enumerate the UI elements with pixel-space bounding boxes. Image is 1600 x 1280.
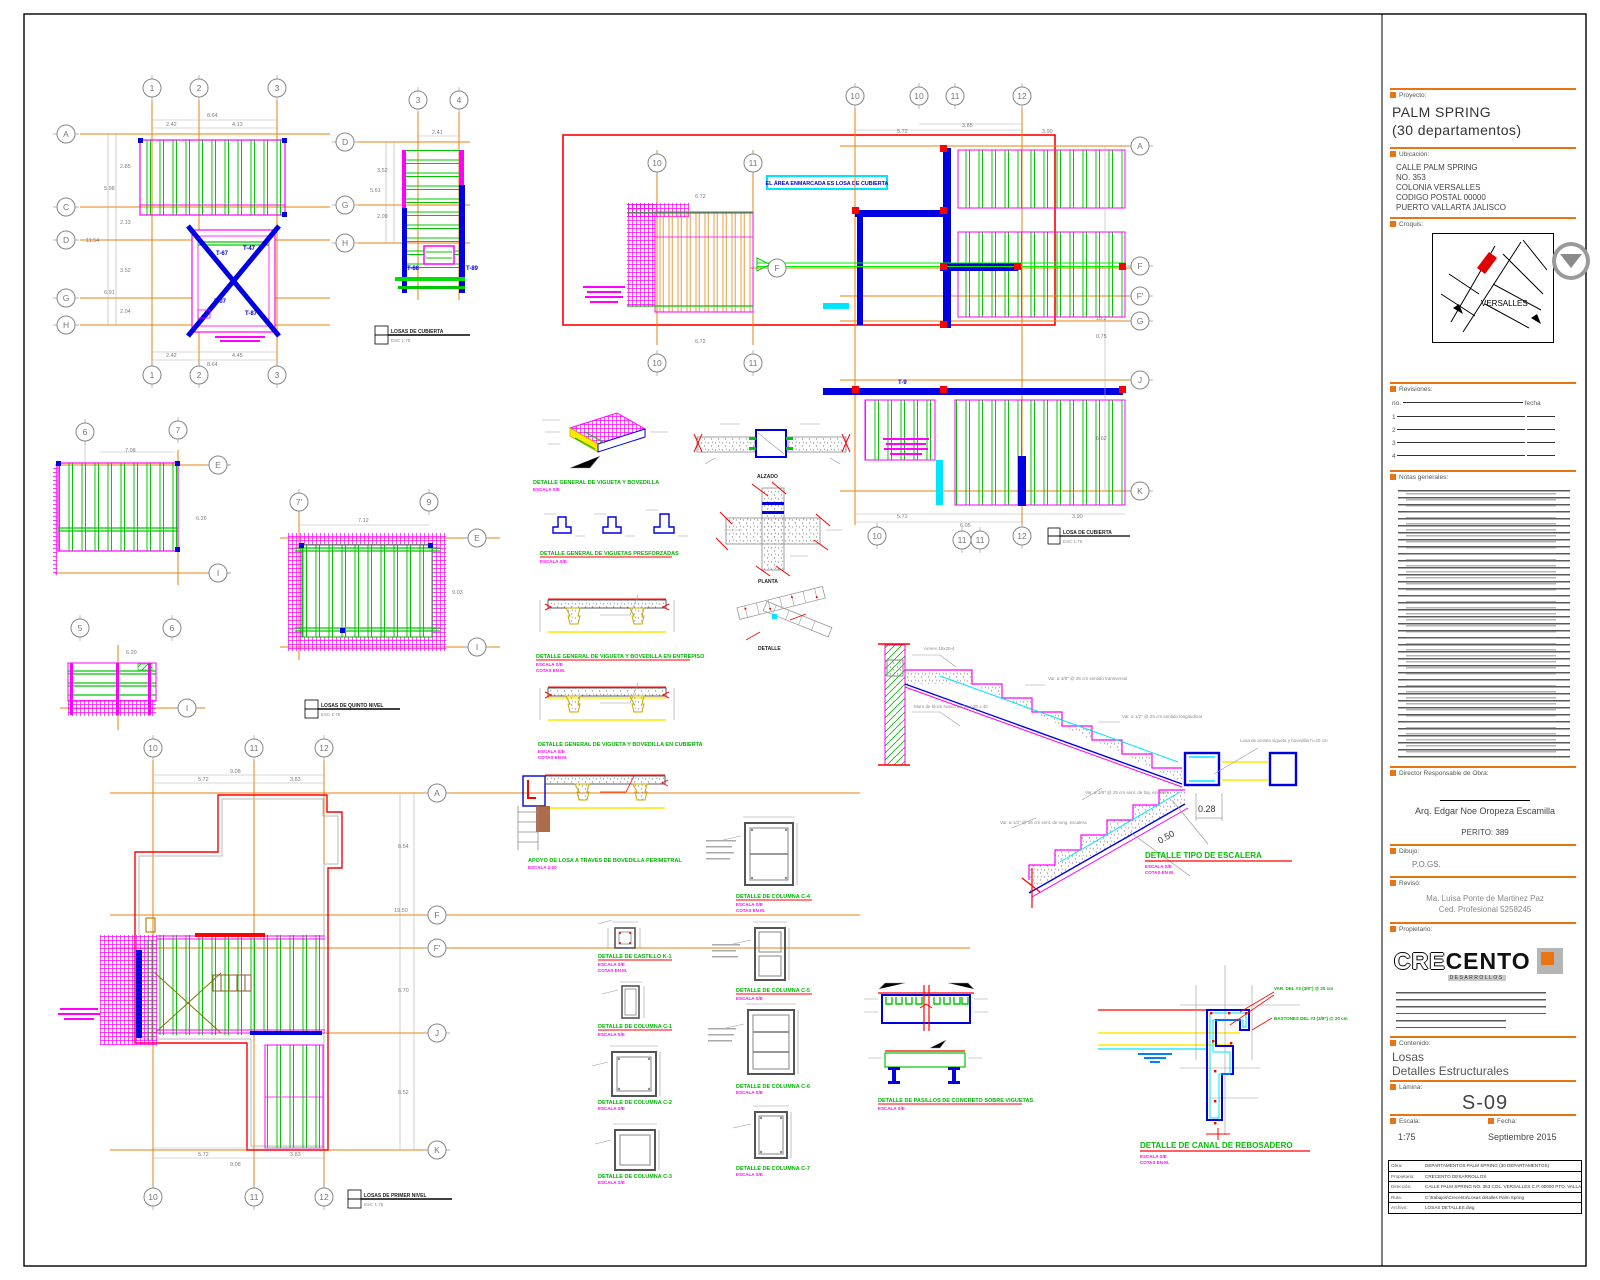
dim: 6.91: [104, 290, 115, 296]
svg-text:5: 5: [78, 623, 83, 633]
contenido-label: Contenido:: [1390, 1040, 1430, 1047]
svg-text:12: 12: [1017, 91, 1027, 101]
dim: 2.04: [120, 309, 131, 315]
plan-losa-5: 6.20 5 6 I: [60, 615, 205, 730]
detail-scale: ESCALA S/E: [598, 1180, 625, 1185]
svg-text:6: 6: [170, 623, 175, 633]
dim: 3.83: [290, 777, 301, 783]
grid-bubble: 2: [190, 75, 208, 101]
stamp-logo-icon: [1552, 242, 1590, 280]
dim: 4.45: [232, 353, 243, 359]
title-block: Proyecto: PALM SPRING (30 departamentos)…: [1384, 14, 1586, 1266]
dim: 5.98: [104, 186, 115, 192]
detail-pasillos: DETALLE DE PASILLOS DE CONCRETO SOBRE VI…: [864, 983, 1033, 1111]
grid-bubble: G: [332, 196, 358, 214]
detail-castillo-k1: DETALLE DE CASTILLO K-1 ESCALA S/E COTAS…: [598, 920, 672, 973]
revision-row: 1: [1392, 414, 1574, 421]
svg-text:10: 10: [148, 743, 158, 753]
detail-apoyo-losa: APOYO DE LOSA A TRAVES DE BOVEDILLA PERI…: [518, 775, 682, 870]
stair-note: Muro de block hueco de 15 x 20 x 40: [914, 704, 988, 709]
grid-bubble: 11: [971, 527, 989, 553]
grid-bubble: A: [1127, 137, 1153, 155]
dim: 6.62: [1096, 436, 1107, 442]
grid-bubble: 12: [1013, 523, 1031, 549]
grid-bubble: 12: [1013, 83, 1031, 109]
dim: 5.72: [198, 777, 209, 783]
grid-bubble: I: [174, 699, 200, 717]
svg-text:12: 12: [319, 743, 329, 753]
t-label: T-89: [466, 266, 479, 272]
owner-phone-text: [1396, 1020, 1506, 1028]
legend-scale: ESC 1:75: [391, 338, 411, 343]
svg-text:4: 4: [457, 95, 462, 105]
detail-title: DETALLE DE PASILLOS DE CONCRETO SOBRE VI…: [878, 1098, 1033, 1104]
dim: 7.12: [358, 518, 369, 524]
address-line: CALLE PALM SPRING: [1396, 163, 1478, 173]
detail-scale: ESCALA S/E: [598, 1106, 625, 1111]
detail-scale: ESCALA S/E: [598, 1032, 625, 1037]
dim: 8.64: [207, 113, 218, 119]
svg-text:12: 12: [1017, 531, 1027, 541]
dim: 2.09: [377, 214, 388, 220]
general-notes-text: [1406, 493, 1556, 755]
dim: 8.64: [207, 362, 218, 368]
detail-title: DETALLE GENERAL DE VIGUETA Y BOVEDILLA E…: [536, 654, 705, 660]
grid-bubble: 9: [420, 489, 438, 515]
divider: [1390, 876, 1576, 878]
grid-bubble: 3: [268, 362, 286, 388]
svg-text:I: I: [217, 568, 219, 578]
detail-notes: COTAS EN M.: [1145, 870, 1174, 875]
stair-note: Losa de azotea vigueta y bovedilla h=20 …: [1240, 738, 1328, 743]
svg-text:F': F': [1137, 291, 1144, 301]
svg-text:F: F: [1137, 261, 1142, 271]
t-label: T-87: [245, 311, 258, 317]
lamina-label: Lámina:: [1390, 1084, 1422, 1091]
detail-planta: PLANTA: [716, 482, 842, 585]
grid-bubble: H: [332, 234, 358, 252]
orange-bullet-icon: [1390, 221, 1396, 227]
svg-text:F: F: [774, 263, 779, 273]
stair-note: Var. ø 3/8" @ 25 cm sentido transversal: [1048, 676, 1127, 681]
divider: [1390, 1114, 1576, 1116]
grid-bubble: 11: [245, 1184, 263, 1210]
svg-text:C: C: [63, 202, 69, 212]
stair-note: Var. ø 3/8" @ 25 cm sent. de baj. escale…: [1085, 790, 1170, 795]
orange-bullet-icon: [1390, 848, 1396, 854]
reviso-cedula: Ced. Profesional 5258245: [1392, 905, 1578, 914]
plan-losa-7: 9.08 5.72 3.83 5.72 3.83 9.08 8.54 19.50…: [58, 700, 970, 1210]
fecha-label: Fecha:: [1488, 1118, 1517, 1125]
divider: [1390, 147, 1576, 149]
legend-title: LOSAS DE PRIMER NIVEL: [364, 1193, 427, 1199]
grid-bubble: D: [53, 231, 79, 249]
detail-scale: ESCALA S/E: [1145, 864, 1172, 869]
svg-text:E: E: [474, 533, 480, 543]
revision-row: 2: [1392, 427, 1574, 434]
proyecto-label: Proyecto:: [1390, 92, 1426, 99]
svg-text:J: J: [1138, 375, 1142, 385]
svg-text:10: 10: [652, 158, 662, 168]
grid-bubble: 10: [846, 83, 864, 109]
signature-line: [1440, 800, 1530, 801]
t-label: T-9: [898, 380, 907, 386]
dim: 3.90: [1072, 514, 1083, 520]
reviso-label: Revisó:: [1390, 880, 1421, 887]
svg-text:D: D: [342, 137, 348, 147]
svg-text:G: G: [1137, 316, 1144, 326]
grid-bubble: E: [464, 529, 490, 547]
roof-area-note: EL ÁREA ENMARCADA ES LOSA DE CUBIERTA: [766, 180, 889, 187]
grid-bubble: J: [1127, 371, 1153, 389]
divider: [1390, 88, 1576, 90]
revisiones-label: Revisiones:: [1390, 386, 1433, 393]
dim: 2.42: [166, 122, 177, 128]
footer-table: Obra:DEPARTAMENTOS PALM SPRING (30 DEPAR…: [1388, 1160, 1582, 1214]
dim: 8.54: [398, 844, 409, 850]
svg-text:6: 6: [83, 427, 88, 437]
plan-losa-6: 7.12 9.03 7' 9 E I: [280, 489, 500, 660]
dim: 5.72: [897, 514, 908, 520]
orange-bullet-icon: [1488, 1118, 1494, 1124]
orange-bullet-icon: [1390, 770, 1396, 776]
detail-title: PLANTA: [758, 579, 778, 585]
grid-bubble: 11: [245, 735, 263, 761]
dim: 3.52: [377, 168, 388, 174]
grid-bubble: 10: [648, 150, 666, 176]
table-row: Ruta:C:\trabajos\Crecento\Losas detalles…: [1389, 1193, 1581, 1204]
svg-text:A: A: [434, 788, 440, 798]
detail-alzado: ALZADO: [694, 424, 850, 480]
svg-text:J: J: [435, 1028, 439, 1038]
detail-scale: ESCALA S/E: [598, 962, 625, 967]
detail-title: DETALLE GENERAL DE VIGUETA Y BOVEDILLA: [533, 480, 659, 486]
legend-block: LOSAS DE PRIMER NIVEL ESC 1:75: [348, 1190, 452, 1208]
table-row: Archivo:LOSAS DETALLES.dwg: [1389, 1203, 1581, 1213]
detail-seccion-entrepiso: DETALLE GENERAL DE VIGUETA Y BOVEDILLA E…: [536, 595, 705, 673]
svg-text:E: E: [215, 460, 221, 470]
svg-text:A: A: [63, 129, 69, 139]
orange-bullet-icon: [1390, 92, 1396, 98]
plan-losa-4: 7.08 6.26 6 7 E I: [53, 417, 231, 585]
grid-bubble: 1: [143, 75, 161, 101]
grid-bubble: G: [1127, 312, 1153, 330]
grid-bubble: 10: [144, 735, 162, 761]
grid-bubble: 6: [163, 615, 181, 641]
stair-note: Armex 15x20-4: [924, 646, 955, 651]
dro-name: Arq. Edgar Noe Oropeza Escamilla: [1392, 806, 1578, 816]
svg-text:D: D: [63, 235, 69, 245]
svg-text:1: 1: [150, 83, 155, 93]
legend-scale: ESC 1:75: [364, 1202, 384, 1207]
svg-text:H: H: [342, 238, 348, 248]
svg-text:11: 11: [749, 158, 758, 168]
detail-scale: ESCALA S/E: [736, 1090, 763, 1095]
detail-title: ALZADO: [757, 474, 778, 480]
legend-block: LOSAS DE QUINTO NIVEL ESC 1:75: [305, 700, 400, 718]
dim: 0.75: [1096, 334, 1107, 340]
detail-columna-c5: DETALLE DE COLUMNA C-5 ESCALA S/E: [712, 922, 812, 1001]
grid-bubble: E: [205, 456, 231, 474]
svg-text:10: 10: [872, 531, 882, 541]
revisions-header: no. fecha: [1392, 400, 1574, 407]
logo-cre-text: CRE: [1394, 948, 1446, 975]
svg-text:11: 11: [749, 358, 758, 368]
detail-escalera: 0.28 0.50 Armex 15x20-4 Muro de block hu…: [878, 644, 1328, 908]
grid-bubble: C: [53, 198, 79, 216]
grid-bubble: 6: [76, 419, 94, 445]
detail-title: APOYO DE LOSA A TRAVES DE BOVEDILLA PERI…: [528, 858, 682, 864]
orange-bullet-icon: [1390, 1040, 1396, 1046]
grid-bubble: F': [424, 939, 450, 957]
detail-columna-c6: DETALLE DE COLUMNA C-6 ESCALA S/E: [708, 1004, 810, 1095]
orange-bullet-icon: [1390, 880, 1396, 886]
detail-scale: ESCALA S/E: [736, 902, 763, 907]
t-label: T-07: [214, 299, 227, 305]
detail-title: DETALLE DE CASTILLO K-1: [598, 954, 672, 960]
dro-perito: PERITO: 389: [1392, 828, 1578, 837]
contenido-line1: Losas: [1392, 1050, 1424, 1064]
grid-bubble: 3: [268, 75, 286, 101]
revision-row: 3: [1392, 440, 1574, 447]
svg-text:H: H: [63, 320, 69, 330]
dim: 6.26: [196, 516, 207, 522]
dim: 3.90: [1042, 129, 1053, 135]
orange-bullet-icon: [1390, 1118, 1396, 1124]
divider: [1390, 1036, 1576, 1038]
svg-text:A: A: [1137, 141, 1143, 151]
t-label: T-47: [243, 246, 256, 252]
logo-square-icon: [1537, 948, 1563, 974]
legend-block: LOSA DE CUBIERTA ESC 1:75: [1048, 528, 1130, 544]
grid-bubble: G: [53, 289, 79, 307]
t-label: T-88: [407, 266, 420, 272]
detail-columna-c1: DETALLE DE COLUMNA C-1 ESCALA S/E: [598, 982, 672, 1037]
grid-bubble: A: [424, 784, 450, 802]
grid-bubble: D: [332, 133, 358, 151]
svg-text:7': 7': [296, 497, 303, 507]
divider: [1390, 1080, 1576, 1082]
propietario-label: Propietario:: [1390, 926, 1432, 933]
detail-scale: ESCALA S/E: [736, 996, 763, 1001]
divider: [1390, 470, 1576, 472]
detail-viguetas-presforzadas: DETALLE GENERAL DE VIGUETAS PRESFORZADAS…: [540, 510, 688, 564]
grid-bubble: 4: [450, 87, 468, 113]
map-area-label: VERSALLES: [1481, 299, 1528, 308]
svg-text:3: 3: [275, 370, 280, 380]
crecento-logo: CRECENTODESARROLLOS: [1394, 948, 1563, 975]
dim: 2.13: [120, 220, 131, 226]
svg-text:10: 10: [850, 91, 860, 101]
detail-title: DETALLE GENERAL DE VIGUETA Y BOVEDILLA E…: [538, 742, 703, 748]
detail-columna-c3: DETALLE DE COLUMNA C-3 ESCALA S/E: [595, 1124, 672, 1185]
divider: [1390, 922, 1576, 924]
detail-title: DETALLE: [758, 646, 781, 652]
grid-bubble: 7: [169, 417, 187, 443]
svg-text:F': F': [434, 943, 441, 953]
svg-text:10: 10: [652, 358, 662, 368]
detail-title: DETALLE TIPO DE ESCALERA: [1145, 851, 1262, 860]
grid-bubble: J: [424, 1024, 450, 1042]
detail-notes: COTAS EN M.: [538, 755, 567, 760]
grid-bubble: I: [205, 564, 231, 582]
orange-bullet-icon: [1390, 1084, 1396, 1090]
dim: 6.05: [960, 523, 971, 529]
svg-text:10: 10: [148, 1192, 158, 1202]
dim: 19.50: [394, 908, 408, 914]
grid-bubble: I: [464, 638, 490, 656]
svg-text:1: 1: [150, 370, 155, 380]
detail-columna-c4: DETALLE DE COLUMNA C-4 ESCALA S/E COTAS …: [706, 817, 812, 913]
svg-text:11: 11: [976, 535, 985, 545]
dim: 3.83: [290, 1152, 301, 1158]
detail-notes: COTAS EN M.: [536, 668, 565, 673]
dim: 7.08: [125, 448, 136, 454]
stair-dim: 0.28: [1198, 804, 1216, 814]
dibujo-label: Dibujo:: [1390, 848, 1419, 855]
address-line: CODIGO POSTAL 00000: [1396, 193, 1486, 203]
croquis-label: Croquis:: [1390, 221, 1423, 228]
detail-notes: COTAS EN M.: [1140, 1160, 1169, 1165]
svg-text:F: F: [434, 910, 439, 920]
legend-scale: ESC 1:75: [321, 712, 341, 717]
svg-text:G: G: [63, 293, 70, 303]
project-name-line1: PALM SPRING: [1392, 104, 1491, 120]
detail-title: DETALLE DE CANAL DE REBOSADERO: [1140, 1141, 1293, 1150]
detail-scale: ESCALA S/E: [540, 559, 567, 564]
dim: 5.61: [370, 188, 381, 194]
dim: 5.72: [198, 1152, 209, 1158]
project-name-line2: (30 departamentos): [1392, 122, 1521, 138]
canal-note: BASTONES DEL #3 (3/8") @ 20 cm: [1274, 1016, 1348, 1021]
grid-bubble: 12: [315, 735, 333, 761]
stair-note: Var. ø 1/2" @ 25 cm sent. de long. escal…: [1000, 820, 1087, 825]
owner-address-text: [1396, 992, 1546, 1014]
svg-text:I: I: [186, 703, 188, 713]
sheet-number: S-09: [1384, 1092, 1586, 1115]
escala-label: Escala:: [1390, 1118, 1420, 1125]
table-row: Obra:DEPARTAMENTOS PALM SPRING (30 DEPAR…: [1389, 1161, 1581, 1172]
svg-text:9: 9: [427, 497, 432, 507]
dim: 3.52: [120, 268, 131, 274]
detail-title: DETALLE DE COLUMNA C-1: [598, 1024, 672, 1030]
detail-vigueta-bovedilla-iso: DETALLE GENERAL DE VIGUETA Y BOVEDILLA E…: [533, 413, 668, 492]
grid-bubble: K: [424, 1141, 450, 1159]
dim: 9.08: [230, 769, 241, 775]
address-line: NO. 353: [1396, 173, 1426, 183]
grid-bubble: F: [424, 906, 450, 924]
divider: [1390, 382, 1576, 384]
stair-note: Var. ø 1/2" @ 25 cm sentido longitudinal: [1122, 714, 1202, 719]
grid-bubble: 7': [290, 489, 308, 515]
detail-scale: ESCALA S/E: [536, 662, 563, 667]
detail-title: DETALLE DE COLUMNA C-4: [736, 894, 811, 900]
svg-text:3: 3: [416, 95, 421, 105]
detail-iso-rebar: DETALLE: [737, 586, 832, 652]
grid-bubble: 10: [868, 523, 886, 549]
dim: 2.41: [432, 130, 443, 136]
ubicacion-label: Ubicación:: [1390, 151, 1429, 158]
dibujo-value: P.O.GS.: [1412, 860, 1441, 869]
legend-scale: ESC 1:75: [1063, 539, 1083, 544]
svg-text:10: 10: [914, 91, 924, 101]
dim: 6.72: [695, 194, 706, 200]
detail-canal-rebosadero: VAR. DEL #3 (3/8") @ 20 cm BASTONES DEL …: [1098, 965, 1348, 1165]
orange-bullet-icon: [1390, 151, 1396, 157]
detail-notes: COTAS EN M.: [598, 968, 627, 973]
logo-subtitle: DESARROLLOS: [1448, 975, 1506, 981]
legend-title: LOSAS DE QUINTO NIVEL: [321, 703, 383, 709]
reviso-name: Ma. Luisa Ponte de Martinez Paz: [1392, 894, 1578, 903]
divider: [1390, 217, 1576, 219]
grid-bubble: 11: [946, 83, 964, 109]
svg-text:K: K: [434, 1145, 440, 1155]
svg-text:2: 2: [197, 370, 202, 380]
grid-bubble: 2: [190, 362, 208, 388]
svg-text:7: 7: [176, 425, 181, 435]
detail-columna-c7: DETALLE DE COLUMNA C-7 ESCALA S/E: [733, 1106, 810, 1177]
detail-scale: ESCALA S/E: [736, 1172, 763, 1177]
orange-bullet-icon: [1390, 386, 1396, 392]
divider: [1390, 844, 1576, 846]
revision-row: 4: [1392, 453, 1574, 460]
svg-text:11: 11: [951, 91, 960, 101]
grid-bubble: F: [1127, 257, 1153, 275]
detail-seccion-cubierta: DETALLE GENERAL DE VIGUETA Y BOVEDILLA E…: [538, 683, 703, 760]
grid-bubble: F': [1127, 287, 1153, 305]
detail-columna-c2: DETALLE DE COLUMNA C-2 ESCALA S/E: [592, 1046, 672, 1111]
detail-scale: ESCALA 1:10: [528, 865, 557, 870]
legend-block: LOSAS DE CUBIERTA ESC 1:75: [375, 326, 470, 344]
grid-bubble: 3: [409, 87, 427, 113]
dro-label: Director Responsable de Obra:: [1390, 770, 1489, 777]
orange-bullet-icon: [1390, 474, 1396, 480]
location-map: VERSALLES: [1432, 233, 1554, 343]
plan-losa-1: T-67 T-47 T-07 T-87 8.64 2.42 4.13 2.85 …: [53, 75, 330, 388]
legend-title: LOSAS DE CUBIERTA: [391, 329, 444, 335]
address-line: COLONIA VERSALLES: [1396, 183, 1480, 193]
canal-note: VAR. DEL #3 (3/8") @ 20 cm: [1274, 986, 1333, 991]
svg-text:12: 12: [319, 1192, 329, 1202]
svg-text:3: 3: [275, 83, 280, 93]
dim: 9.03: [452, 590, 463, 596]
grid-bubble: A: [53, 125, 79, 143]
notas-label: Notas generales:: [1390, 474, 1448, 481]
divider: [1390, 766, 1576, 768]
plan-losa-2: T-88 T-89 2.41 3.52 5.61 2.09 3 4 D G H …: [332, 87, 479, 344]
detail-scale: ESCALA S/E: [533, 487, 560, 492]
drawing-canvas: T-67 T-47 T-07 T-87 8.64 2.42 4.13 2.85 …: [0, 0, 1600, 1280]
detail-scale: ESCALA S/E: [878, 1106, 905, 1111]
contenido-line2: Detalles Estructurales: [1392, 1064, 1509, 1078]
detail-scale: ESCALA S/E: [1140, 1154, 1167, 1159]
stair-dim: 0.50: [1156, 828, 1176, 845]
address-line: PUERTO VALLARTA JALISCO: [1396, 203, 1506, 213]
dim: 6.20: [126, 650, 137, 656]
fecha-value: Septiembre 2015: [1488, 1132, 1557, 1142]
dim: 6.72: [695, 339, 706, 345]
grid-bubble: 10: [648, 350, 666, 376]
detail-scale: ESCALA S/E: [538, 749, 565, 754]
svg-text:I: I: [476, 642, 478, 652]
dim: 11.54: [86, 238, 99, 244]
grid-bubble: 11: [953, 527, 971, 553]
logo-cento-text: CENTODESARROLLOS: [1446, 948, 1531, 975]
escala-value: 1:75: [1398, 1132, 1416, 1142]
grid-bubble: F: [764, 259, 790, 277]
grid-bubble: 10: [144, 1184, 162, 1210]
grid-bubble: 11: [744, 150, 762, 176]
